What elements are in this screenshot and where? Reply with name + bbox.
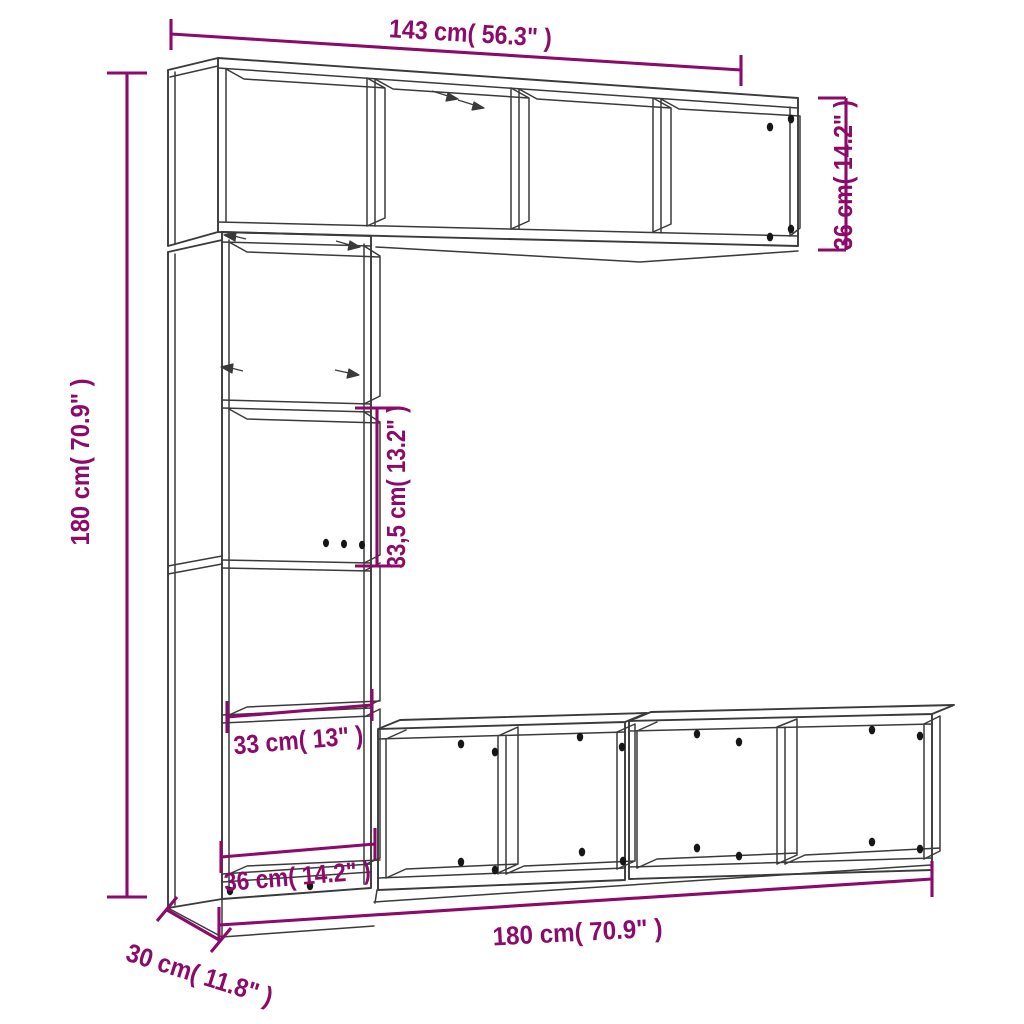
column-inner-walls — [229, 240, 364, 893]
screw-dot — [736, 852, 742, 861]
screw-dot — [492, 866, 498, 875]
stand-right-panels — [629, 724, 932, 868]
tv-stand-left — [378, 713, 647, 890]
screw-dot — [458, 740, 464, 749]
dim-total-width-label: 180 cm( 70.9" ) — [492, 913, 663, 952]
screw-dot — [694, 730, 700, 739]
screw-dot — [788, 225, 794, 234]
stand-right-interior — [637, 716, 940, 868]
screw-dot — [788, 115, 794, 124]
dim-upper-unit-height: 36 cm( 14.2" ) — [818, 98, 858, 250]
dim-depth: 30 cm( 11.8" ) — [123, 897, 277, 1012]
dim-total-height-line — [107, 73, 147, 897]
screw-dot — [492, 748, 498, 757]
stand-left-panels — [378, 732, 625, 878]
dim-compartment-width: 33 cm( 13" ) — [227, 689, 372, 760]
furniture-dimension-diagram: 143 cm( 56.3" ) 36 cm( 14.2" ) 180 cm( 7… — [0, 0, 1024, 1024]
dim-lower-compartment-width-label: 36 cm( 14.2" ) — [223, 855, 372, 897]
screw-dot — [917, 732, 923, 741]
screw-dot — [341, 540, 347, 548]
dim-total-height-label: 180 cm( 70.9" ) — [65, 379, 95, 546]
left-column-unit — [168, 232, 380, 937]
screw-dot — [458, 858, 464, 867]
screw-dot — [767, 123, 773, 132]
screw-dot — [577, 733, 583, 742]
dim-depth-label: 30 cm( 11.8" ) — [123, 937, 277, 1011]
top-unit-interior — [226, 69, 800, 236]
screw-dot — [869, 726, 875, 735]
dim-upper-unit-height-label: 36 cm( 14.2" ) — [828, 100, 858, 250]
screw-dot — [579, 848, 585, 857]
column-shelves — [222, 242, 371, 882]
tv-stand-right — [374, 705, 954, 903]
screw-dot — [767, 233, 773, 242]
stand-left-frame — [378, 713, 647, 890]
column-interior — [229, 242, 380, 874]
column-side-panel — [168, 254, 222, 905]
screw-dot — [736, 738, 742, 747]
diagram-canvas: 143 cm( 56.3" ) 36 cm( 14.2" ) 180 cm( 7… — [0, 0, 1024, 1024]
screw-dot — [359, 541, 365, 549]
stand-left-interior — [386, 724, 635, 878]
dim-top-width-label: 143 cm( 56.3" ) — [388, 13, 552, 53]
screw-dots — [227, 115, 923, 896]
dim-compartment-height-label: 33,5 cm( 13.2" ) — [381, 406, 411, 569]
screw-dot — [620, 857, 626, 866]
dim-total-height: 180 cm( 70.9" ) — [65, 73, 147, 897]
screw-dot — [917, 845, 923, 854]
screw-dot — [323, 539, 329, 547]
top-wall-unit — [168, 58, 800, 262]
dim-lower-compartment-width: 36 cm( 14.2" ) — [221, 828, 375, 897]
dim-compartment-width-label: 33 cm( 13" ) — [232, 720, 364, 761]
screw-dot — [619, 743, 625, 752]
screw-dot — [869, 838, 875, 847]
screw-dot — [694, 844, 700, 853]
